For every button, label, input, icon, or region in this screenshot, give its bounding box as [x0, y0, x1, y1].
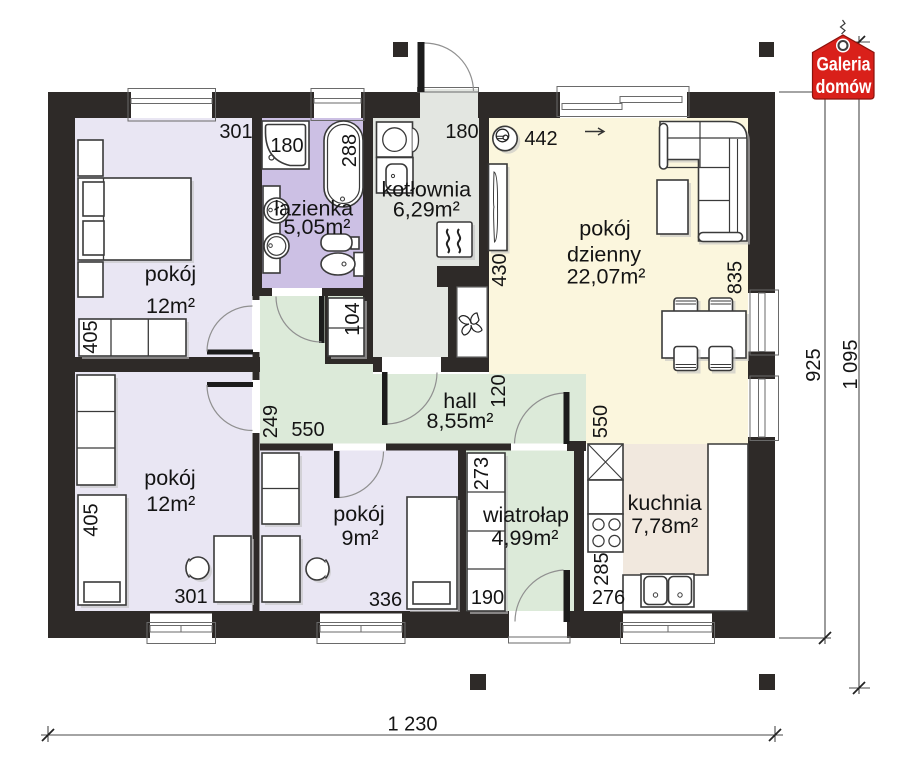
svg-text:180: 180: [445, 121, 478, 143]
svg-text:4,99m²: 4,99m²: [492, 526, 559, 550]
svg-text:430: 430: [489, 253, 511, 286]
svg-text:22,07m²: 22,07m²: [567, 265, 646, 289]
svg-text:550: 550: [291, 419, 324, 441]
svg-text:301: 301: [219, 121, 252, 143]
svg-text:405: 405: [80, 320, 102, 353]
svg-text:288: 288: [339, 134, 361, 167]
svg-text:925: 925: [803, 348, 825, 381]
svg-text:442: 442: [524, 128, 557, 150]
svg-text:180: 180: [270, 135, 303, 157]
svg-text:249: 249: [260, 405, 282, 438]
svg-text:273: 273: [471, 457, 493, 490]
svg-text:5,05m²: 5,05m²: [284, 215, 351, 239]
svg-text:550: 550: [590, 405, 612, 438]
svg-text:190: 190: [471, 587, 504, 609]
svg-text:12m²: 12m²: [146, 492, 195, 516]
svg-text:405: 405: [81, 503, 103, 536]
svg-text:pokój: pokój: [579, 217, 630, 241]
svg-text:276: 276: [592, 587, 625, 609]
svg-text:336: 336: [369, 589, 402, 611]
svg-text:6,29m²: 6,29m²: [393, 198, 460, 222]
svg-text:pokój: pokój: [144, 466, 195, 490]
svg-text:120: 120: [488, 374, 510, 407]
svg-text:1 095: 1 095: [840, 339, 862, 389]
svg-text:pokój: pokój: [333, 502, 384, 526]
svg-text:104: 104: [342, 302, 364, 335]
svg-text:7,78m²: 7,78m²: [631, 514, 698, 538]
svg-text:1 230: 1 230: [387, 714, 437, 736]
svg-text:pokój: pokój: [145, 262, 196, 286]
svg-text:Galeria: Galeria: [816, 53, 870, 75]
svg-text:9m²: 9m²: [341, 526, 378, 550]
svg-text:835: 835: [725, 261, 747, 294]
svg-text:301: 301: [174, 586, 207, 608]
svg-text:domów: domów: [816, 76, 872, 98]
svg-text:dzienny: dzienny: [567, 243, 641, 267]
svg-text:8,55m²: 8,55m²: [427, 409, 494, 433]
svg-text:wiatrołap: wiatrołap: [482, 503, 569, 527]
svg-text:285: 285: [591, 552, 613, 585]
svg-text:kuchnia: kuchnia: [628, 491, 702, 515]
svg-text:12m²: 12m²: [146, 294, 195, 318]
